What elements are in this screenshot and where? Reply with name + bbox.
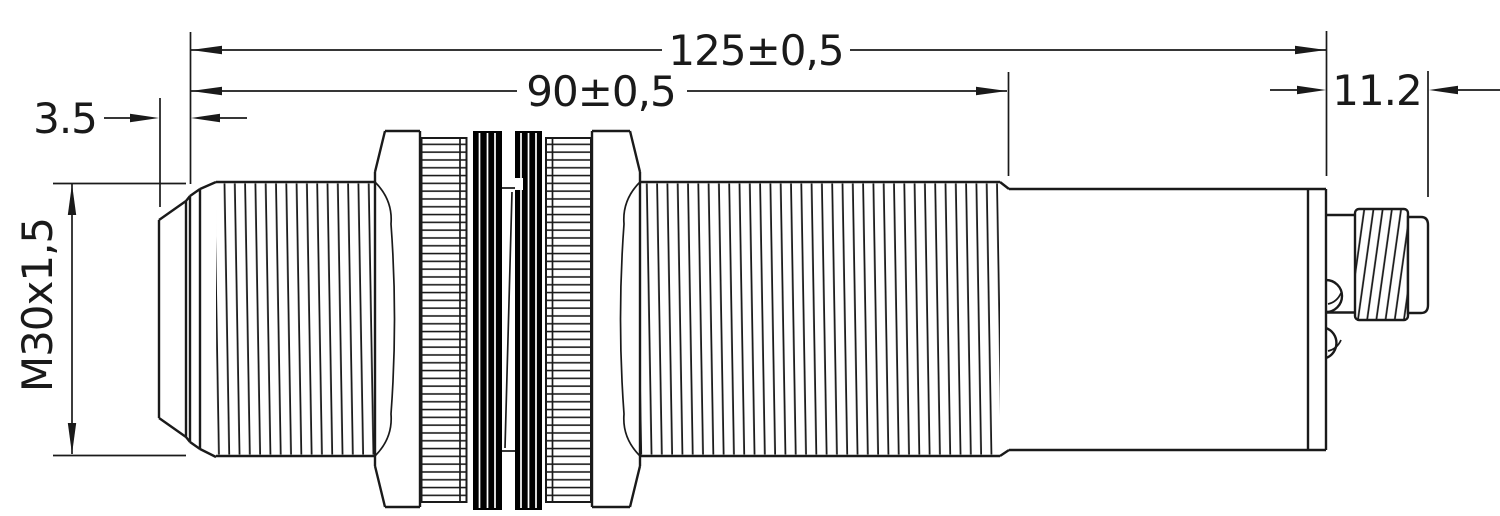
dim-thread-length-label: 90±0,5 (526, 67, 675, 116)
rear-thread-barrel (641, 182, 1009, 456)
rear-hex-nut (592, 131, 640, 507)
arrowhead-left (130, 114, 159, 122)
dim-connector-length-label: 11.2 (1332, 66, 1422, 115)
front-lock-washer (422, 138, 467, 502)
rear-hex-nut-facets (621, 182, 641, 456)
arrowhead-left (1297, 86, 1326, 94)
arrowhead-right (191, 114, 220, 122)
front-thread-hatch (216, 184, 374, 455)
arrowhead-left (191, 87, 222, 95)
seal-ring-1 (473, 131, 502, 510)
connector-end-tip (1408, 217, 1428, 313)
sensor-dimension-drawing: 125±0,5 90±0,5 3.5 11.2 M30x1,5 (0, 0, 1500, 516)
m12-connector (1326, 209, 1428, 358)
rear-hex-nut-outline (592, 131, 640, 507)
arrowhead-left (191, 46, 222, 54)
led-indicator-1 (1326, 280, 1342, 312)
seal-ring-2-notch (515, 178, 523, 190)
front-thread-barrel (216, 182, 374, 456)
led-indicator-2 (1326, 328, 1341, 358)
led-dome-1-detail (1328, 293, 1341, 304)
connector-thread-ring (1355, 209, 1408, 320)
rear-lock-washer (546, 138, 591, 502)
rear-housing-outline (1009, 189, 1308, 450)
sensor-body (159, 131, 1428, 510)
rear-housing (1009, 189, 1326, 450)
front-hex-nut-outline (375, 131, 420, 507)
arrowhead-right (1429, 86, 1458, 94)
thread-gap-detail (502, 188, 515, 451)
led-dome-2 (1326, 328, 1336, 358)
technical-drawing-canvas: 125±0,5 90±0,5 3.5 11.2 M30x1,5 (0, 0, 1500, 516)
tip-face-outline (159, 182, 216, 457)
rear-thread-hatch (641, 184, 1000, 455)
dim-tip-length-label: 3.5 (33, 94, 97, 143)
dim-overall-length-label: 125±0,5 (668, 26, 843, 75)
end-cap-outline (1308, 189, 1326, 450)
arrowhead-right (976, 87, 1007, 95)
dimension-overall-length: 125±0,5 (191, 26, 1327, 184)
seal-ring-2 (515, 131, 542, 510)
front-hex-nut (375, 131, 420, 507)
dimension-thread-length: 90±0,5 (191, 67, 1009, 176)
arrowhead-right (1295, 46, 1326, 54)
dimension-connector-length: 11.2 (1270, 66, 1500, 197)
dimension-tip-length: 3.5 (33, 94, 247, 207)
arrowhead-down (68, 423, 76, 454)
dim-thread-spec-label: M30x1,5 (13, 218, 62, 392)
sensing-face-tip (159, 182, 216, 457)
front-hex-nut-facets (375, 182, 395, 456)
arrowhead-up (68, 184, 76, 215)
